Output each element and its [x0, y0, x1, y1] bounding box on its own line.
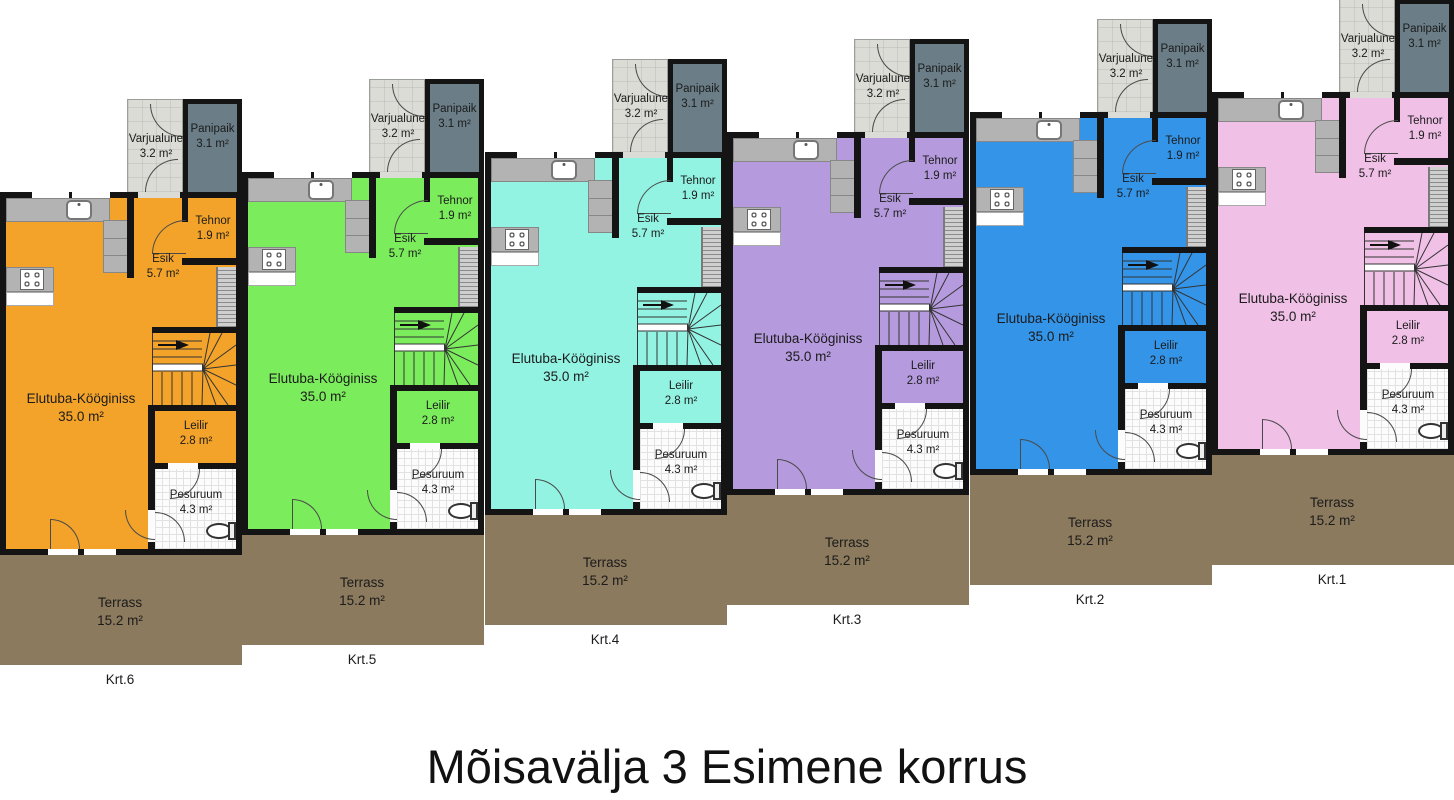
window — [811, 489, 843, 495]
room-label-varjualune: Varjualune 3.2 m² — [1322, 32, 1414, 62]
room-name: Pesuruum — [879, 428, 967, 443]
room-label-esik: Esik 5.7 m² — [133, 252, 193, 282]
terrace-doorway — [48, 549, 78, 555]
room-name: Terrass — [40, 594, 200, 612]
room-name: Tehnor — [669, 174, 727, 189]
room-label-esik: Esik 5.7 m² — [375, 232, 435, 262]
room-label-pesuruum: Pesuruum 4.3 m² — [879, 428, 967, 458]
room-label-pesuruum: Pesuruum 4.3 m² — [152, 488, 240, 518]
room-label-varjualune: Varjualune 3.2 m² — [837, 72, 929, 102]
wall — [875, 482, 882, 495]
apartment-unit: Elutuba-Kööginiss 35.0 m² Esik 5.7 m² Te… — [727, 132, 969, 642]
toilet-tank-icon — [470, 502, 478, 520]
toilet-tank-icon — [1440, 422, 1448, 440]
stove-icon — [20, 269, 44, 290]
room-label-pesuruum: Pesuruum 4.3 m² — [1122, 408, 1210, 438]
toilet-tank-icon — [955, 462, 963, 480]
staircase — [637, 293, 721, 365]
room-label-elutuba: Elutuba-Kööginiss 35.0 m² — [6, 390, 156, 425]
kitchen-cabinet — [1315, 120, 1340, 173]
room-name: Esik — [133, 252, 193, 267]
room-name: Leilir — [156, 419, 236, 434]
room-area: 35.0 m² — [6, 408, 156, 426]
room-name: Leilir — [1126, 339, 1206, 354]
room-label-terrass: Terrass 15.2 m² — [1252, 494, 1412, 529]
toilet-tank-icon — [228, 522, 236, 540]
staircase — [879, 273, 963, 345]
room-name: Pesuruum — [637, 448, 725, 463]
room-name: Terrass — [282, 574, 442, 592]
room-area: 15.2 m² — [282, 592, 442, 610]
room-label-tehnor: Tehnor 1.9 m² — [1154, 134, 1212, 164]
room-name: Terrass — [1010, 514, 1170, 532]
staircase — [1122, 253, 1206, 325]
room-label-elutuba: Elutuba-Kööginiss 35.0 m² — [976, 310, 1126, 345]
toilet-tank-icon — [1198, 442, 1206, 460]
room-label-terrass: Terrass 15.2 m² — [40, 594, 200, 629]
wall — [637, 365, 727, 371]
entry-doorway — [1350, 92, 1392, 98]
room-area: 1.9 m² — [911, 169, 969, 184]
unit-number-label: Krt.4 — [505, 631, 705, 649]
wall — [394, 385, 484, 391]
room-area: 35.0 m² — [733, 348, 883, 366]
kitchen-worktop — [733, 232, 781, 246]
room-area: 4.3 m² — [1364, 403, 1452, 418]
room-area: 2.8 m² — [1126, 354, 1206, 369]
entry-doorway — [1108, 112, 1150, 118]
room-area: 2.8 m² — [398, 414, 478, 429]
room-label-pesuruum: Pesuruum 4.3 m² — [637, 448, 725, 478]
kitchen-worktop — [1218, 192, 1266, 206]
entry-doorway — [865, 132, 907, 138]
room-name: Leilir — [398, 399, 478, 414]
wall — [390, 522, 397, 535]
kitchen-cabinet — [103, 220, 128, 273]
stove-icon — [262, 249, 286, 270]
room-name: Leilir — [883, 359, 963, 374]
room-area: 35.0 m² — [248, 388, 398, 406]
room-name: Terrass — [1252, 494, 1412, 512]
staircase — [1364, 233, 1448, 305]
room-label-tehnor: Tehnor 1.9 m² — [426, 194, 484, 224]
unit-number-label: Krt.3 — [747, 611, 947, 629]
window — [1054, 469, 1086, 475]
sink-icon — [66, 200, 92, 220]
kitchen-cabinet — [830, 160, 855, 213]
apartment-unit: Elutuba-Kööginiss 35.0 m² Esik 5.7 m² Te… — [970, 112, 1212, 622]
room-area: 3.2 m² — [1080, 67, 1172, 82]
room-label-varjualune: Varjualune 3.2 m² — [595, 92, 687, 122]
room-name: Elutuba-Kööginiss — [248, 370, 398, 388]
kitchen-cabinet — [588, 180, 613, 233]
wall — [1122, 325, 1212, 331]
room-name: Tehnor — [184, 214, 242, 229]
room-area: 5.7 m² — [1103, 187, 1163, 202]
apartment-unit: Elutuba-Kööginiss 35.0 m² Esik 5.7 m² Te… — [242, 172, 484, 682]
room-area: 5.7 m² — [618, 227, 678, 242]
room-name: Elutuba-Kööginiss — [6, 390, 156, 408]
room-label-terrass: Terrass 15.2 m² — [525, 554, 685, 589]
room-label-terrass: Terrass 15.2 m² — [767, 534, 927, 569]
room-area: 15.2 m² — [525, 572, 685, 590]
sink-icon — [793, 140, 819, 160]
room-name: Elutuba-Kööginiss — [1218, 290, 1368, 308]
room-label-varjualune: Varjualune 3.2 m² — [1080, 52, 1172, 82]
room-area: 15.2 m² — [1010, 532, 1170, 550]
kitchen-counter — [491, 158, 595, 182]
wall — [879, 345, 969, 351]
room-area: 4.3 m² — [879, 443, 967, 458]
room-name: Pesuruum — [152, 488, 240, 503]
wall — [1360, 442, 1367, 455]
room-area: 1.9 m² — [1396, 129, 1454, 144]
room-label-esik: Esik 5.7 m² — [1345, 152, 1405, 182]
terrace-doorway — [775, 489, 805, 495]
room-name: Varjualune — [110, 132, 202, 147]
kitchen-counter — [1218, 98, 1322, 122]
apartment-unit: Elutuba-Kööginiss 35.0 m² Esik 5.7 m² Te… — [0, 192, 242, 702]
sink-icon — [551, 160, 577, 180]
terrace-doorway — [1018, 469, 1048, 475]
room-area: 35.0 m² — [491, 368, 641, 386]
wall — [1364, 305, 1454, 311]
stove-icon — [990, 189, 1014, 210]
room-name: Esik — [860, 192, 920, 207]
room-name: Esik — [1103, 172, 1163, 187]
room-area: 15.2 m² — [767, 552, 927, 570]
room-name: Tehnor — [1154, 134, 1212, 149]
room-label-tehnor: Tehnor 1.9 m² — [911, 154, 969, 184]
unit-number-label: Krt.2 — [990, 591, 1190, 609]
kitchen-worktop — [491, 252, 539, 266]
plan-title: Mõisavälja 3 Esimene korrus — [0, 736, 1454, 797]
wall — [633, 502, 640, 515]
kitchen-worktop — [6, 292, 54, 306]
kitchen-counter — [6, 198, 110, 222]
kitchen-worktop — [248, 272, 296, 286]
room-name: Esik — [618, 212, 678, 227]
room-label-terrass: Terrass 15.2 m² — [282, 574, 442, 609]
room-area: 5.7 m² — [1345, 167, 1405, 182]
sink-icon — [1278, 100, 1304, 120]
room-label-leilir: Leilir 2.8 m² — [641, 379, 721, 409]
room-name: Pesuruum — [394, 468, 482, 483]
room-area: 1.9 m² — [669, 189, 727, 204]
radiator-icon — [1428, 167, 1448, 227]
window — [326, 529, 358, 535]
room-area: 2.8 m² — [641, 394, 721, 409]
staircase — [394, 313, 478, 385]
unit-number-label: Krt.6 — [20, 671, 220, 689]
room-label-varjualune: Varjualune 3.2 m² — [110, 132, 202, 162]
room-label-elutuba: Elutuba-Kööginiss 35.0 m² — [1218, 290, 1368, 325]
floor-plan: Mõisavälja 3 Esimene korrus — [0, 0, 1454, 800]
room-label-esik: Esik 5.7 m² — [1103, 172, 1163, 202]
room-name: Tehnor — [1396, 114, 1454, 129]
radiator-icon — [1186, 187, 1206, 247]
kitchen-counter — [733, 138, 837, 162]
room-area: 3.2 m² — [1322, 47, 1414, 62]
radiator-icon — [701, 227, 721, 287]
room-name: Esik — [375, 232, 435, 247]
room-label-tehnor: Tehnor 1.9 m² — [1396, 114, 1454, 144]
room-area: 35.0 m² — [976, 328, 1126, 346]
room-label-elutuba: Elutuba-Kööginiss 35.0 m² — [491, 350, 641, 385]
room-area: 5.7 m² — [375, 247, 435, 262]
terrace-doorway — [533, 509, 563, 515]
room-label-terrass: Terrass 15.2 m² — [1010, 514, 1170, 549]
apartment-unit: Elutuba-Kööginiss 35.0 m² Esik 5.7 m² Te… — [485, 152, 727, 662]
room-name: Esik — [1345, 152, 1405, 167]
terrace-doorway — [1260, 449, 1290, 455]
wall — [148, 542, 155, 555]
room-label-elutuba: Elutuba-Kööginiss 35.0 m² — [248, 370, 398, 405]
radiator-icon — [943, 207, 963, 267]
room-name: Leilir — [641, 379, 721, 394]
room-name: Varjualune — [352, 112, 444, 127]
room-label-leilir: Leilir 2.8 m² — [156, 419, 236, 449]
room-area: 4.3 m² — [637, 463, 725, 478]
room-area: 5.7 m² — [860, 207, 920, 222]
room-label-tehnor: Tehnor 1.9 m² — [184, 214, 242, 244]
room-label-pesuruum: Pesuruum 4.3 m² — [1364, 388, 1452, 418]
kitchen-worktop — [976, 212, 1024, 226]
unit-number-label: Krt.5 — [262, 651, 462, 669]
room-label-elutuba: Elutuba-Kööginiss 35.0 m² — [733, 330, 883, 365]
room-label-leilir: Leilir 2.8 m² — [1368, 319, 1448, 349]
entry-doorway — [138, 192, 180, 198]
room-area: 3.2 m² — [352, 127, 444, 142]
window — [84, 549, 116, 555]
room-area: 3.2 m² — [837, 87, 929, 102]
kitchen-cabinet — [1073, 140, 1098, 193]
room-area: 15.2 m² — [1252, 512, 1412, 530]
radiator-icon — [216, 267, 236, 327]
room-area: 2.8 m² — [156, 434, 236, 449]
room-label-pesuruum: Pesuruum 4.3 m² — [394, 468, 482, 498]
room-area: 3.2 m² — [110, 147, 202, 162]
entry-doorway — [380, 172, 422, 178]
room-name: Tehnor — [426, 194, 484, 209]
room-area: 35.0 m² — [1218, 308, 1368, 326]
room-name: Elutuba-Kööginiss — [733, 330, 883, 348]
terrace-doorway — [290, 529, 320, 535]
room-name: Pesuruum — [1122, 408, 1210, 423]
room-label-esik: Esik 5.7 m² — [618, 212, 678, 242]
toilet-tank-icon — [713, 482, 721, 500]
wall — [1118, 462, 1125, 475]
room-area: 15.2 m² — [40, 612, 200, 630]
room-area: 1.9 m² — [426, 209, 484, 224]
room-area: 4.3 m² — [394, 483, 482, 498]
room-area: 5.7 m² — [133, 267, 193, 282]
apartment-unit: Elutuba-Kööginiss 35.0 m² Esik 5.7 m² Te… — [1212, 92, 1454, 602]
kitchen-counter — [976, 118, 1080, 142]
room-area: 1.9 m² — [1154, 149, 1212, 164]
room-name: Varjualune — [1322, 32, 1414, 47]
room-name: Varjualune — [1080, 52, 1172, 67]
wall — [152, 405, 242, 411]
room-label-varjualune: Varjualune 3.2 m² — [352, 112, 444, 142]
kitchen-counter — [248, 178, 352, 202]
room-area: 2.8 m² — [1368, 334, 1448, 349]
unit-number-label: Krt.1 — [1232, 571, 1432, 589]
room-label-leilir: Leilir 2.8 m² — [398, 399, 478, 429]
radiator-icon — [458, 247, 478, 307]
window — [569, 509, 601, 515]
room-name: Terrass — [525, 554, 685, 572]
room-label-esik: Esik 5.7 m² — [860, 192, 920, 222]
room-name: Leilir — [1368, 319, 1448, 334]
room-name: Terrass — [767, 534, 927, 552]
sink-icon — [1036, 120, 1062, 140]
stove-icon — [747, 209, 771, 230]
room-name: Pesuruum — [1364, 388, 1452, 403]
room-area: 2.8 m² — [883, 374, 963, 389]
room-name: Elutuba-Kööginiss — [491, 350, 641, 368]
room-label-leilir: Leilir 2.8 m² — [1126, 339, 1206, 369]
room-name: Varjualune — [595, 92, 687, 107]
room-area: 4.3 m² — [1122, 423, 1210, 438]
room-name: Varjualune — [837, 72, 929, 87]
stove-icon — [505, 229, 529, 250]
kitchen-cabinet — [345, 200, 370, 253]
room-area: 4.3 m² — [152, 503, 240, 518]
room-name: Tehnor — [911, 154, 969, 169]
room-area: 3.2 m² — [595, 107, 687, 122]
room-name: Elutuba-Kööginiss — [976, 310, 1126, 328]
room-area: 1.9 m² — [184, 229, 242, 244]
staircase — [152, 333, 236, 405]
sink-icon — [308, 180, 334, 200]
room-label-tehnor: Tehnor 1.9 m² — [669, 174, 727, 204]
entry-doorway — [623, 152, 665, 158]
window — [1296, 449, 1328, 455]
room-label-leilir: Leilir 2.8 m² — [883, 359, 963, 389]
stove-icon — [1232, 169, 1256, 190]
